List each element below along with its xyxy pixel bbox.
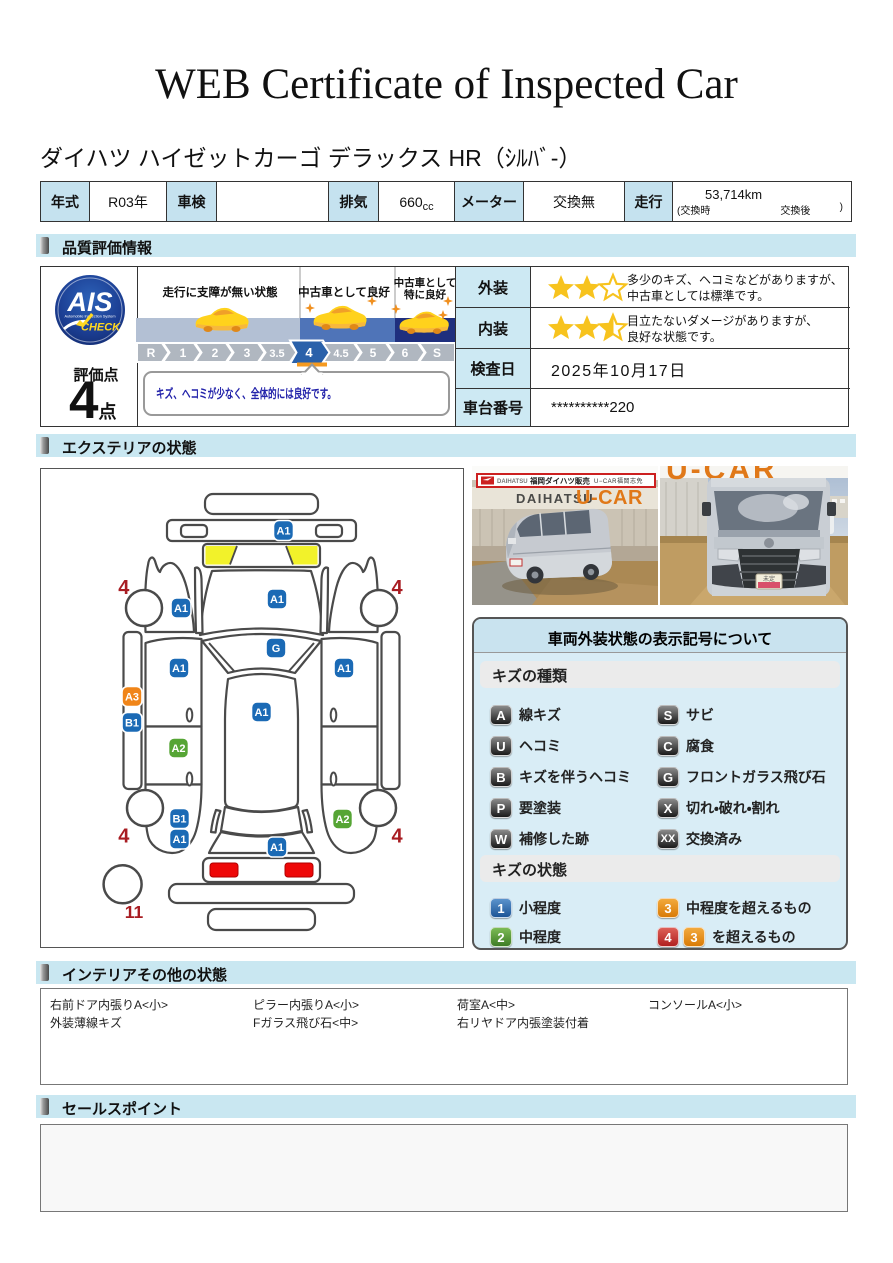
svg-text:4: 4 [305, 345, 313, 360]
svg-text:A1: A1 [270, 842, 284, 854]
svg-text:未定: 未定 [763, 575, 775, 583]
svg-text:11: 11 [125, 902, 144, 922]
svg-text:特に良好: 特に良好 [404, 288, 446, 301]
svg-text:A1: A1 [172, 663, 186, 675]
svg-text:4: 4 [118, 577, 130, 599]
svg-text:中古車として良好: 中古車として良好 [298, 285, 390, 299]
svg-text:A1: A1 [174, 603, 188, 615]
svg-text:5: 5 [370, 346, 377, 360]
svg-text:A1: A1 [172, 834, 186, 846]
svg-text:CHECK: CHECK [81, 322, 121, 334]
svg-text:S: S [433, 346, 441, 360]
svg-text:4.5: 4.5 [333, 348, 348, 360]
svg-text:4: 4 [391, 826, 403, 848]
svg-text:A2: A2 [335, 814, 349, 826]
svg-text:A3: A3 [125, 692, 139, 704]
svg-text:3: 3 [244, 346, 251, 360]
svg-text:A1: A1 [270, 594, 284, 606]
svg-text:A1: A1 [337, 663, 351, 675]
svg-text:G: G [272, 643, 281, 655]
svg-text:4: 4 [391, 577, 403, 599]
svg-text:B1: B1 [172, 814, 186, 826]
svg-text:1: 1 [180, 346, 187, 360]
svg-text:2: 2 [212, 346, 219, 360]
svg-text:U-CAR: U-CAR [576, 487, 643, 509]
svg-text:3.5: 3.5 [269, 348, 284, 360]
svg-text:B1: B1 [125, 718, 139, 730]
svg-text:A1: A1 [254, 707, 268, 719]
svg-text:走行に支障が無い状態: 走行に支障が無い状態 [162, 285, 278, 299]
svg-text:キズ、ヘコミが少なく、全体的には良好です。: キズ、ヘコミが少なく、全体的には良好です。 [156, 386, 336, 401]
svg-text:A2: A2 [171, 743, 185, 755]
svg-text:福岡ダイハツ販売: 福岡ダイハツ販売 [529, 476, 590, 486]
svg-text:U−CAR福岡志免: U−CAR福岡志免 [594, 477, 643, 485]
svg-text:A1: A1 [276, 526, 290, 538]
svg-text:中古車として: 中古車として [394, 276, 456, 289]
svg-text:AIS: AIS [66, 287, 112, 317]
svg-text:6: 6 [402, 346, 409, 360]
svg-text:4: 4 [118, 826, 130, 848]
svg-text:DAIHATSU: DAIHATSU [497, 479, 528, 485]
svg-text:R: R [147, 346, 156, 360]
